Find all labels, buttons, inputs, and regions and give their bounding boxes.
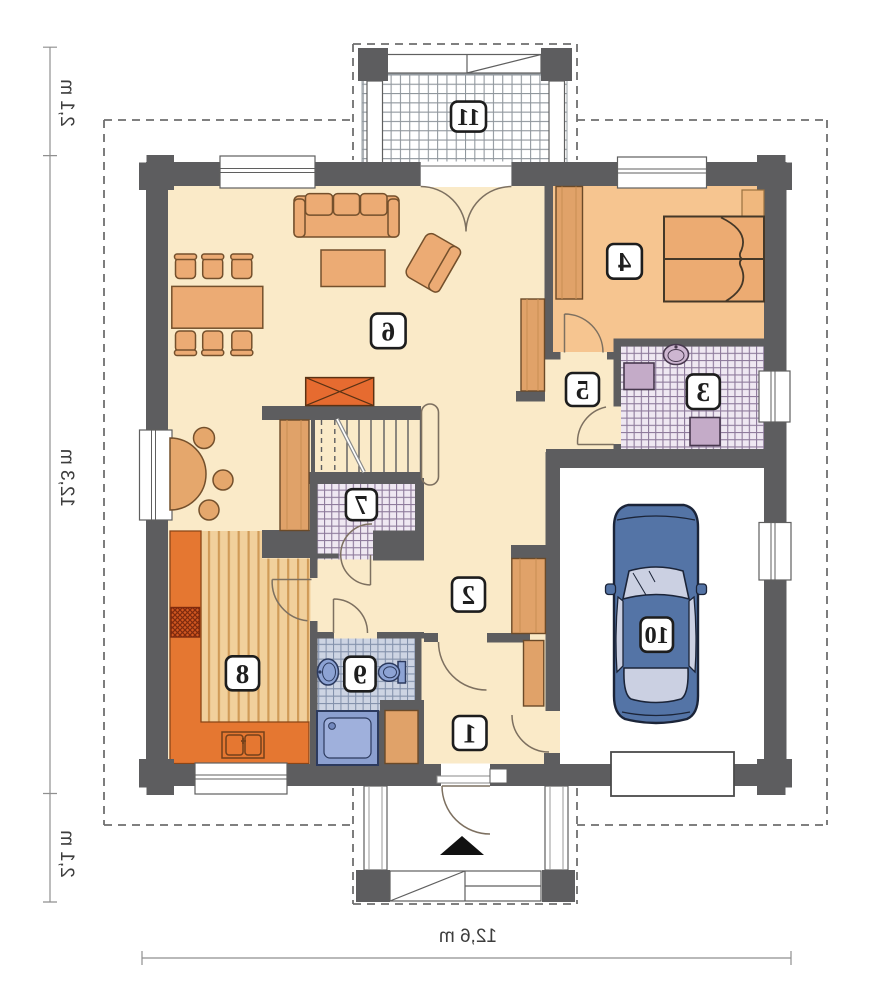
svg-text:1: 1: [463, 719, 477, 749]
svg-text:11: 11: [457, 104, 480, 131]
svg-text:7: 7: [355, 490, 369, 520]
svg-text:12,6 m: 12,6 m: [439, 926, 497, 947]
svg-text:10: 10: [644, 622, 669, 649]
svg-text:3: 3: [697, 377, 711, 407]
svg-text:9: 9: [353, 660, 367, 690]
svg-text:2,1 m: 2,1 m: [56, 79, 77, 127]
svg-text:8: 8: [236, 659, 250, 689]
svg-text:12,3 m: 12,3 m: [56, 449, 77, 507]
svg-text:4: 4: [618, 247, 632, 277]
svg-text:5: 5: [576, 375, 590, 405]
svg-text:2,1 m: 2,1 m: [56, 830, 77, 878]
svg-text:6: 6: [382, 316, 396, 346]
svg-text:2: 2: [462, 580, 476, 610]
